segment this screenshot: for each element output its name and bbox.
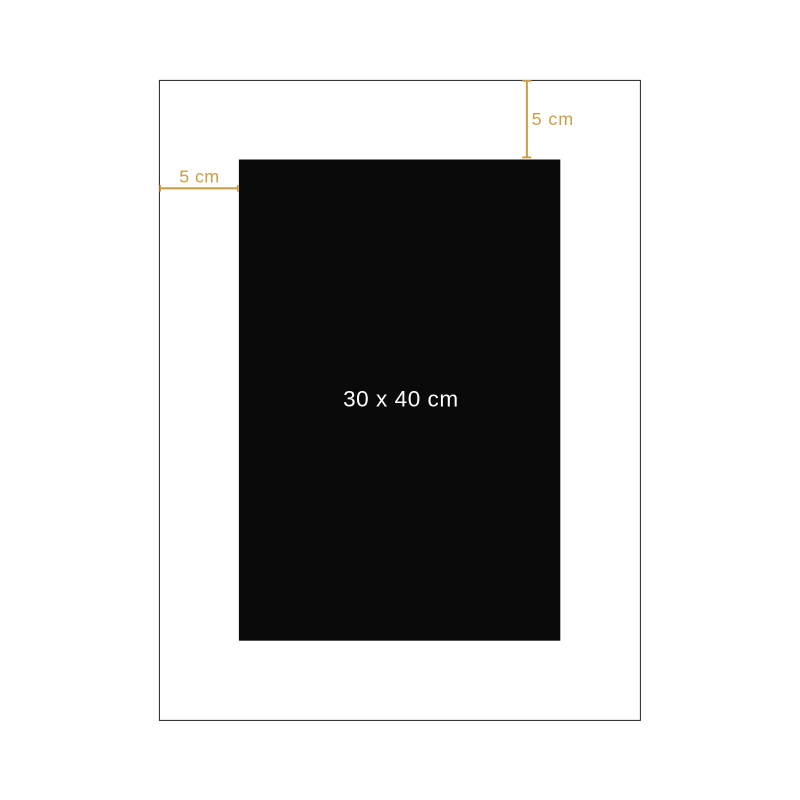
svg-text:30 x 40 cm: 30 x 40 cm — [343, 386, 458, 411]
svg-text:5 cm: 5 cm — [532, 109, 574, 129]
svg-text:5 cm: 5 cm — [179, 167, 219, 187]
